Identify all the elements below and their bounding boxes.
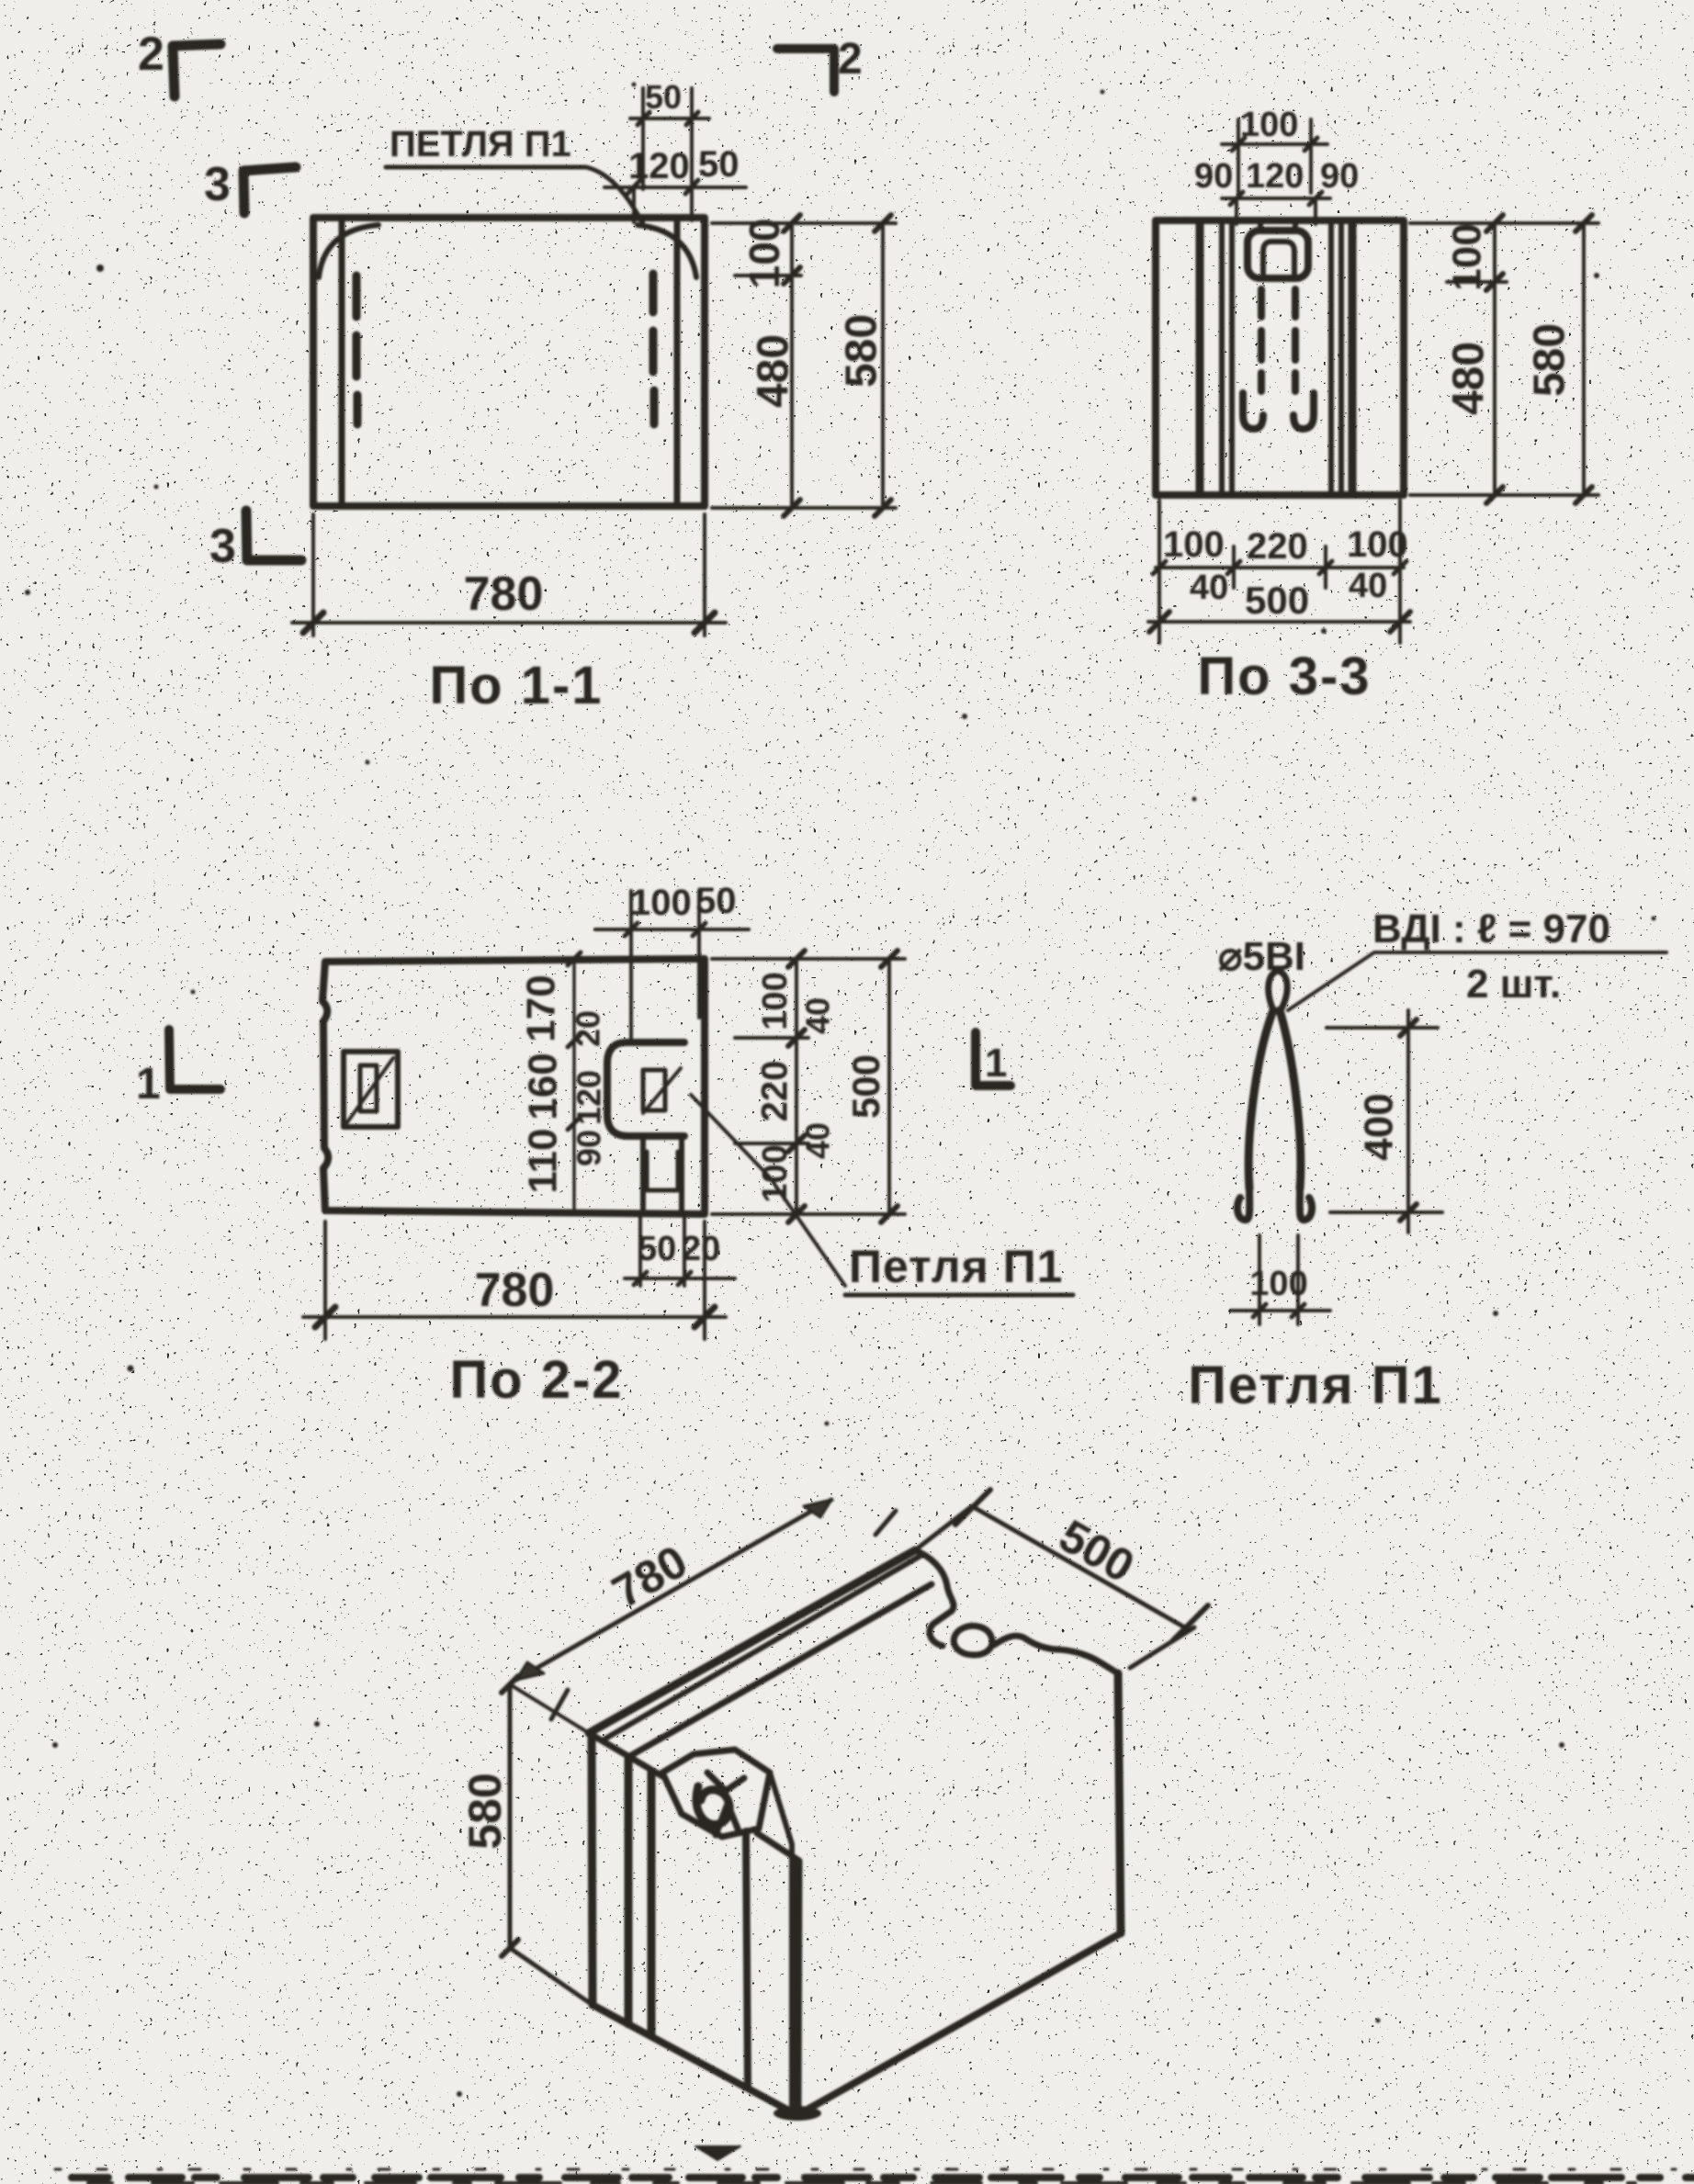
svg-text:⌀5ВI: ⌀5ВI [1218, 934, 1305, 979]
svg-text:110: 110 [521, 1129, 566, 1194]
svg-text:100: 100 [1163, 524, 1225, 565]
svg-text:3: 3 [204, 158, 231, 211]
svg-text:50: 50 [695, 881, 737, 921]
svg-text:2: 2 [838, 35, 863, 84]
svg-text:480: 480 [750, 334, 798, 408]
svg-text:120: 120 [570, 1070, 608, 1125]
svg-text:500: 500 [1245, 579, 1309, 622]
svg-text:160: 160 [521, 1053, 566, 1120]
svg-text:40: 40 [1190, 569, 1228, 607]
svg-text:780: 780 [475, 1264, 555, 1317]
svg-text:580: 580 [838, 314, 887, 388]
svg-text:100: 100 [740, 219, 788, 289]
svg-text:90: 90 [1194, 157, 1233, 196]
svg-text:500: 500 [844, 1054, 887, 1119]
svg-text:По 1-1: По 1-1 [429, 656, 603, 715]
svg-text:По 3-3: По 3-3 [1197, 647, 1371, 706]
svg-text:580: 580 [459, 1773, 511, 1849]
svg-text:100: 100 [1249, 1265, 1307, 1303]
svg-text:100: 100 [1445, 223, 1490, 290]
svg-text:90: 90 [570, 1130, 608, 1166]
svg-text:100: 100 [1347, 524, 1408, 565]
svg-text:100: 100 [756, 972, 795, 1030]
svg-text:220: 220 [755, 1061, 796, 1122]
svg-text:3: 3 [209, 520, 236, 573]
svg-text:400: 400 [1357, 1093, 1402, 1160]
svg-text:20: 20 [570, 1010, 607, 1047]
svg-text:100: 100 [756, 1144, 795, 1202]
svg-text:780: 780 [464, 568, 544, 621]
svg-text:220: 220 [1247, 526, 1308, 567]
svg-text:Петля П1: Петля П1 [849, 1241, 1064, 1292]
svg-text:Петля П1: Петля П1 [1188, 1356, 1443, 1415]
svg-text:480: 480 [1445, 342, 1494, 415]
svg-text:2: 2 [138, 28, 164, 81]
svg-text:100: 100 [630, 883, 692, 923]
svg-text:20: 20 [682, 1230, 720, 1268]
svg-text:40: 40 [799, 997, 837, 1034]
svg-text:По 2-2: По 2-2 [449, 1350, 623, 1410]
svg-text:ПЕТЛЯ П1: ПЕТЛЯ П1 [390, 124, 571, 164]
svg-text:2 шт.: 2 шт. [1466, 962, 1561, 1007]
svg-text:90: 90 [1320, 157, 1359, 196]
svg-text:50: 50 [638, 1230, 676, 1268]
svg-text:1: 1 [136, 1060, 161, 1109]
svg-text:170: 170 [519, 974, 564, 1041]
svg-text:100: 100 [1240, 106, 1298, 144]
svg-text:50: 50 [698, 144, 740, 185]
svg-text:ВДI : ℓ = 970: ВДI : ℓ = 970 [1372, 906, 1610, 951]
svg-text:40: 40 [799, 1122, 837, 1159]
svg-text:40: 40 [1349, 567, 1387, 605]
svg-text:120: 120 [1246, 157, 1304, 196]
svg-text:1: 1 [985, 1041, 1007, 1086]
svg-text:580: 580 [1526, 323, 1575, 397]
